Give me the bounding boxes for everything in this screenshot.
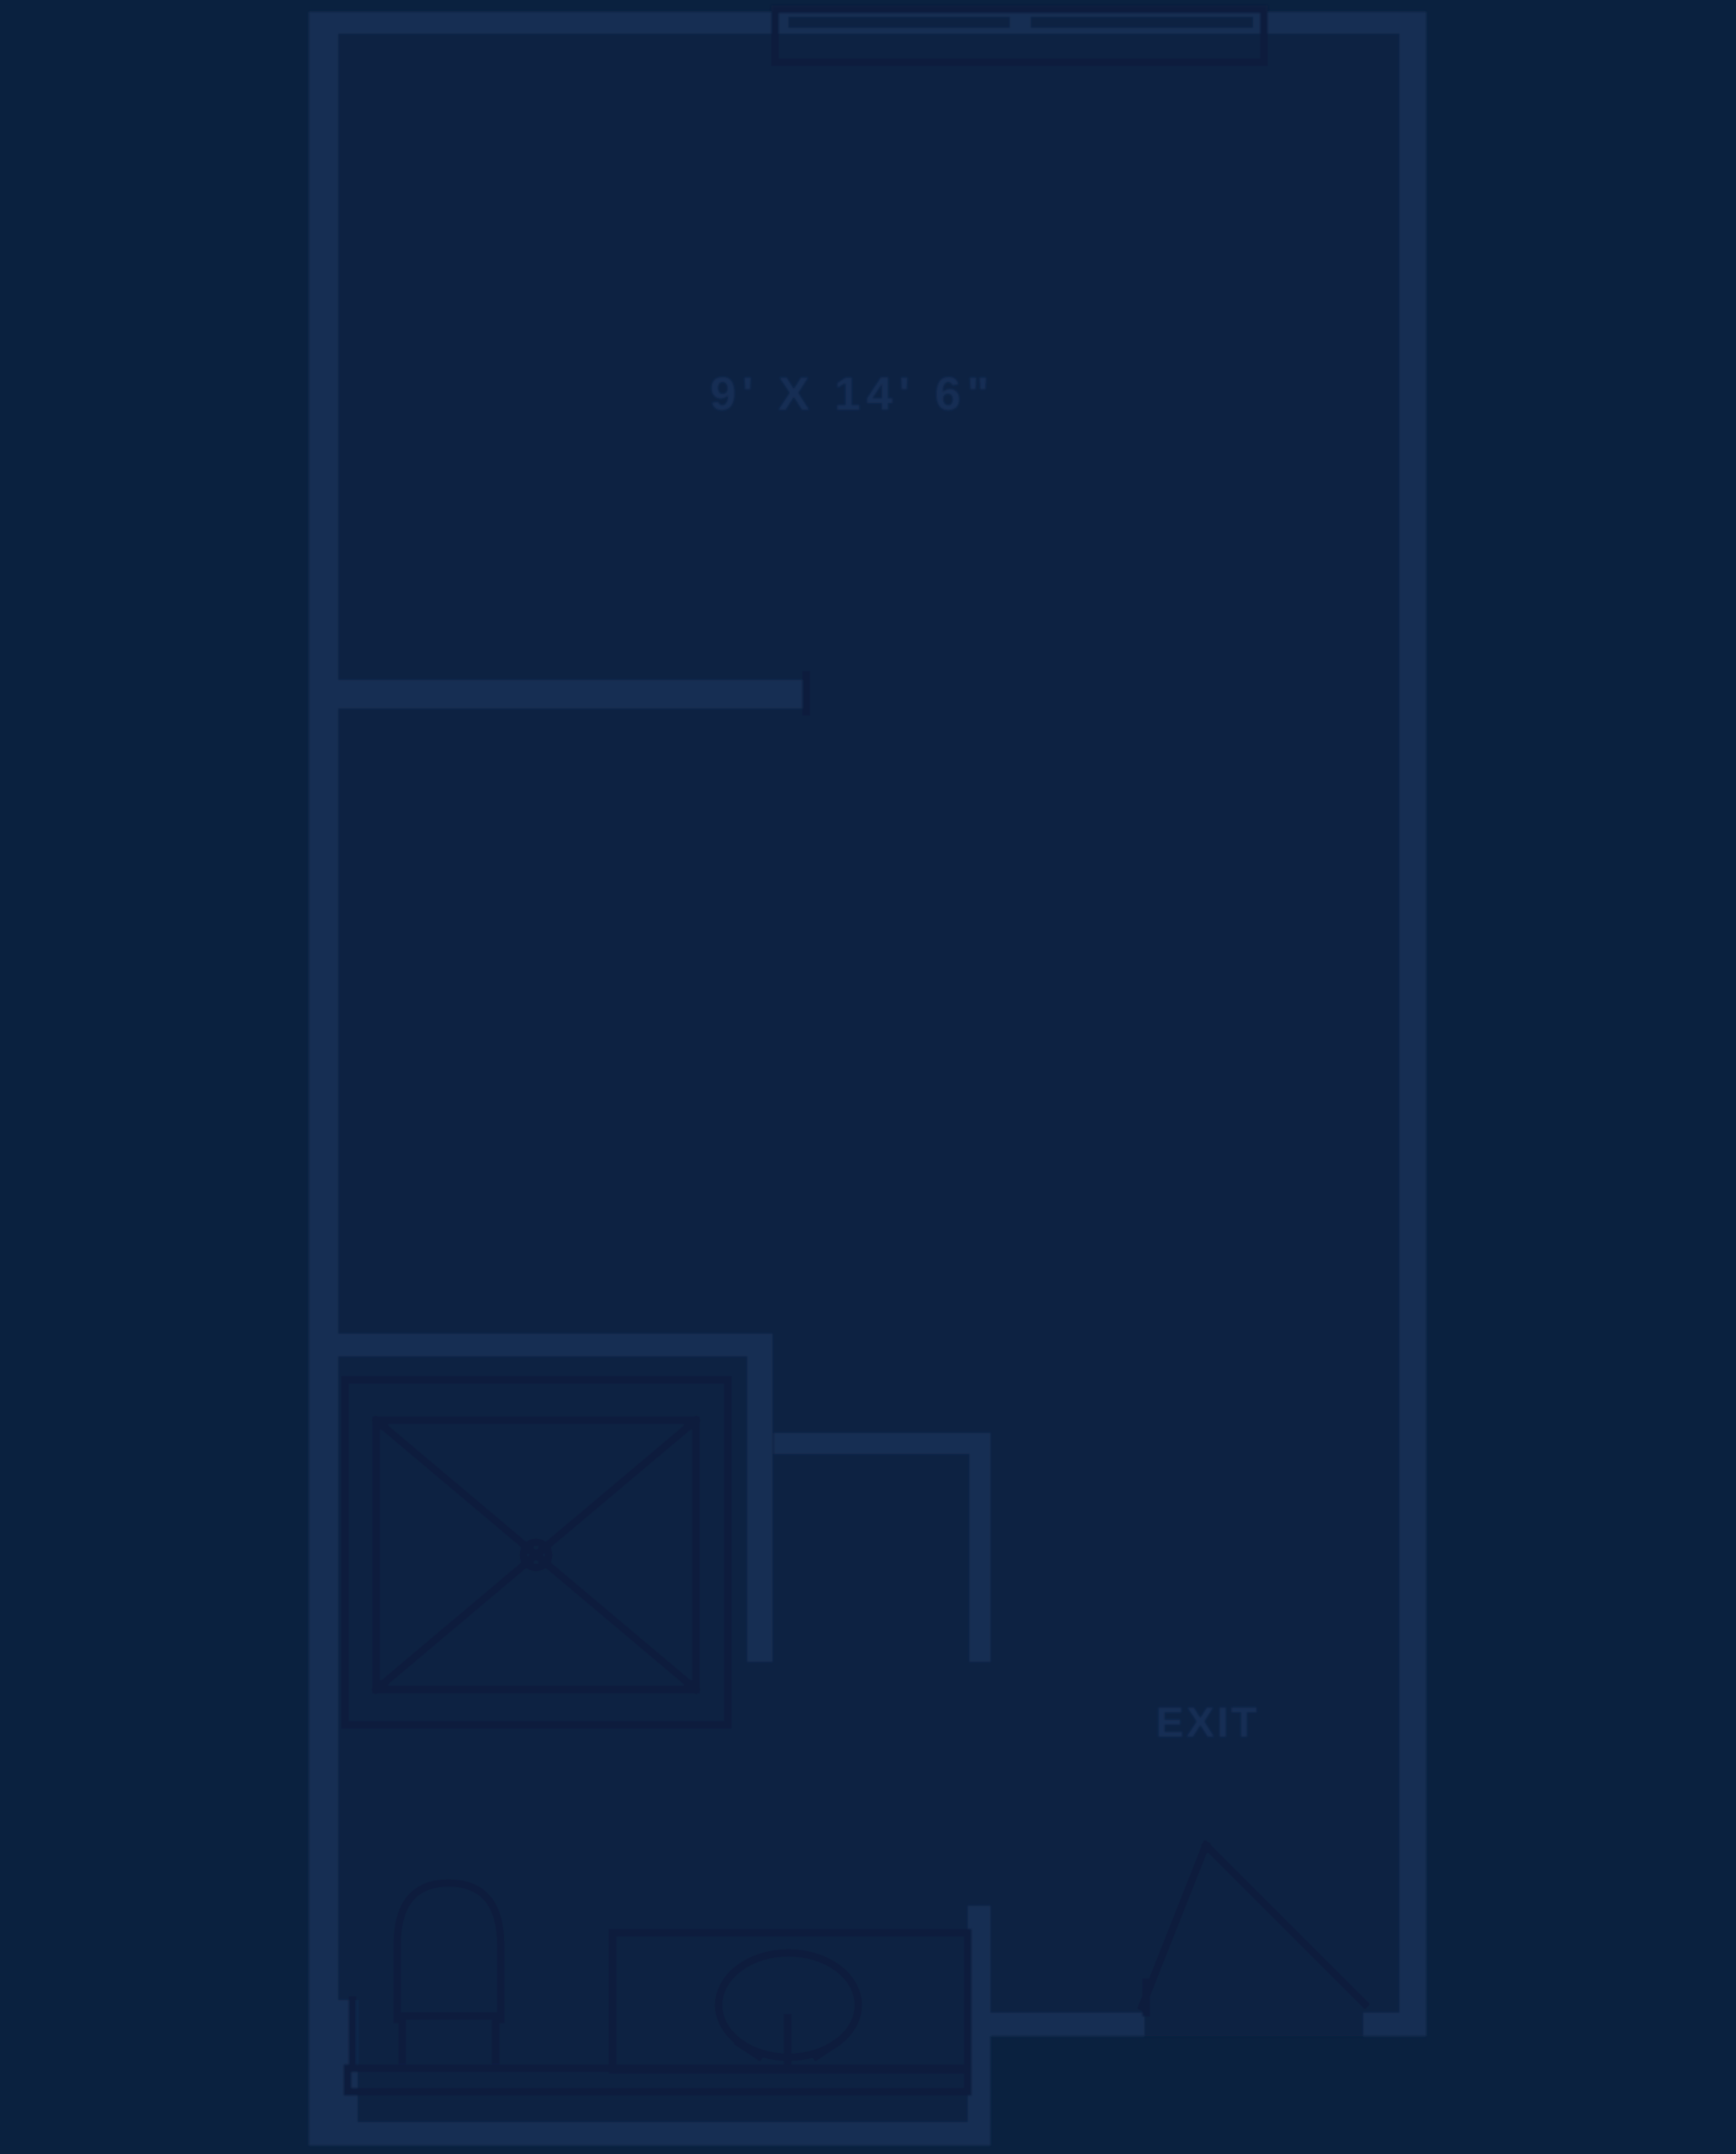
toilet-tank bbox=[404, 2026, 491, 2051]
room-dimension-label: 9' X 14' 6" bbox=[710, 367, 995, 420]
exit-label: EXIT bbox=[1155, 1699, 1259, 1746]
wall-bathroom-top bbox=[338, 1334, 772, 1356]
wall-bottom-entry-left bbox=[990, 2013, 1144, 2036]
window-right-bar-bottom bbox=[1031, 34, 1253, 45]
window-left-bar-bottom bbox=[788, 34, 1010, 45]
wall-entry-left bbox=[969, 1454, 990, 1662]
wall-closet-top bbox=[774, 1433, 990, 1454]
floorplan-page: 9' X 14' 6" EXIT bbox=[0, 0, 1736, 2154]
floor-plan: 9' X 14' 6" EXIT bbox=[0, 0, 1736, 2154]
window-right-bar-top bbox=[1031, 17, 1253, 28]
wall-room-divider bbox=[338, 680, 810, 708]
wall-bottom-entry-right bbox=[1363, 2013, 1426, 2036]
window-left-bar-top bbox=[788, 17, 1010, 28]
wall-bathroom-right bbox=[747, 1334, 772, 1662]
wall-left bbox=[309, 12, 338, 2146]
wall-entry-thin-edge bbox=[990, 1662, 999, 1849]
unit-floor bbox=[309, 12, 1426, 2146]
wall-right bbox=[1399, 12, 1426, 2036]
wall-bottom-bathroom bbox=[309, 2122, 990, 2146]
